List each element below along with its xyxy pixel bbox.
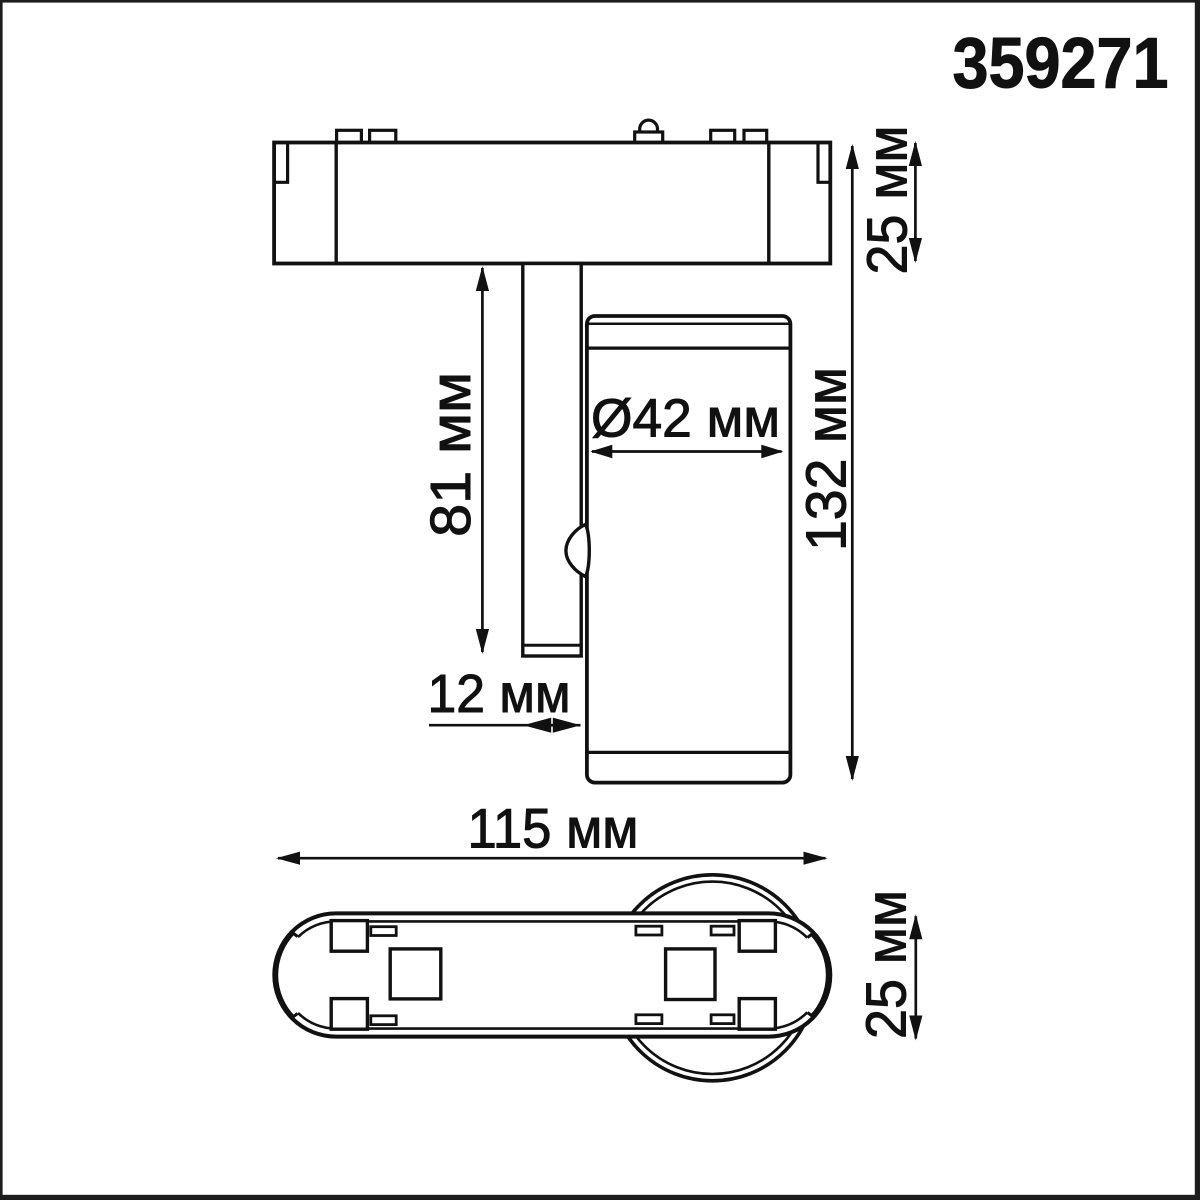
svg-text:115 мм: 115 мм xyxy=(468,797,639,860)
svg-text:132 мм: 132 мм xyxy=(795,367,859,551)
svg-text:25 мм: 25 мм xyxy=(856,126,920,275)
svg-text:12 мм: 12 мм xyxy=(428,664,571,724)
svg-text:81 мм: 81 мм xyxy=(419,372,483,537)
svg-text:25 мм: 25 мм xyxy=(855,890,919,1039)
svg-text:Ø42 мм: Ø42 мм xyxy=(591,389,780,449)
svg-text:359271: 359271 xyxy=(953,25,1169,104)
